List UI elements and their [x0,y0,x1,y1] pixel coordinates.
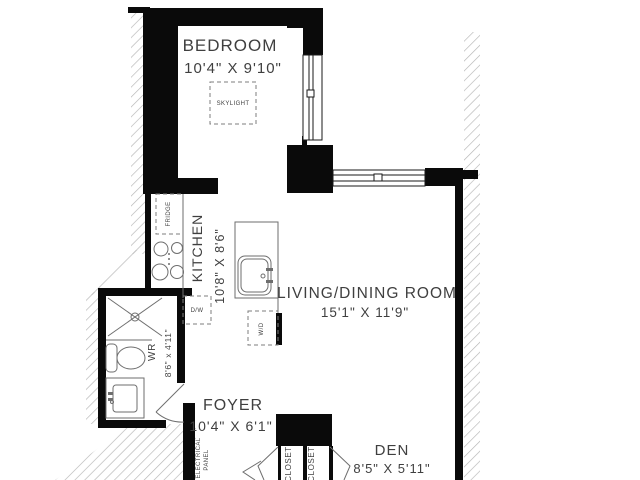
wall-bedroom-right-lower [287,145,333,193]
foyer-label: FOYER [203,397,263,414]
wall-counter-stub [276,313,282,345]
wall-closet-left-side [278,446,281,480]
hatch-wr-strip [86,292,99,424]
closet-right-label: CLOSET [307,446,316,480]
skylight-label: SKYLIGHT [217,101,250,107]
floor-plan-svg: BEDROOM 10'4" X 9'10" KITCHEN 10'8" X 8'… [0,0,640,480]
wall-closet-block [276,414,332,446]
foyer-dims: 10'4" X 6'1" [189,418,272,434]
hatch-zones [55,8,480,480]
wall-kitchen-left [145,193,151,290]
closet-left-door [258,447,278,480]
wall-bedroom-right-upper [287,8,323,55]
wall-closet-right-side [329,446,333,480]
living-dims: 15'1" X 11'9" [321,305,409,320]
living-window [333,170,425,186]
den-label: DEN [375,442,410,459]
bedroom-window [303,55,322,140]
wall-kitchen-top [143,178,218,194]
vanity-sink [106,378,144,418]
electrical-panel-label-line2: PANEL [204,449,210,470]
fridge-label: FRIDGE [166,201,172,226]
closet-left-label: CLOSET [284,446,293,480]
wall-top-right-cap [455,170,478,179]
hatch-right-strip [464,32,480,480]
toilet [106,344,145,372]
living-label: LIVING/DINING ROOM [277,285,457,302]
electrical-panel-label-line1: ELECTRICAL [196,437,202,478]
foyer-door [243,461,261,480]
kitchen-dims: 10'8" X 8'6" [213,228,227,304]
shower [106,298,162,340]
wall-right [455,178,463,480]
wr-door [156,384,184,422]
kitchen-island [235,222,278,313]
wall-wr-right [177,288,185,383]
walls [98,7,478,480]
hatch-bottom-left [55,424,196,480]
den-dims: 8'5" X 5'11" [353,461,430,476]
dishwasher-label: D/W [191,308,204,314]
wr-label: WR [147,343,158,361]
hatch-left-strip [131,8,145,254]
floor-plan: BEDROOM 10'4" X 9'10" KITCHEN 10'8" X 8'… [0,0,640,480]
stove-burners [152,242,184,280]
wall-wr-left [98,288,106,428]
kitchen-sink [238,256,273,295]
wall-bedroom-left [143,8,178,193]
bedroom-dims: 10'4" X 9'10" [184,60,282,77]
wr-dims: 8'6" x 4'11" [163,329,173,377]
wall-foyer-left [183,403,195,480]
wall-wr-bottom [98,420,166,428]
kitchen-label: KITCHEN [189,214,205,282]
washer-dryer-label: W/D [259,322,265,335]
bedroom-label: BEDROOM [183,36,278,55]
